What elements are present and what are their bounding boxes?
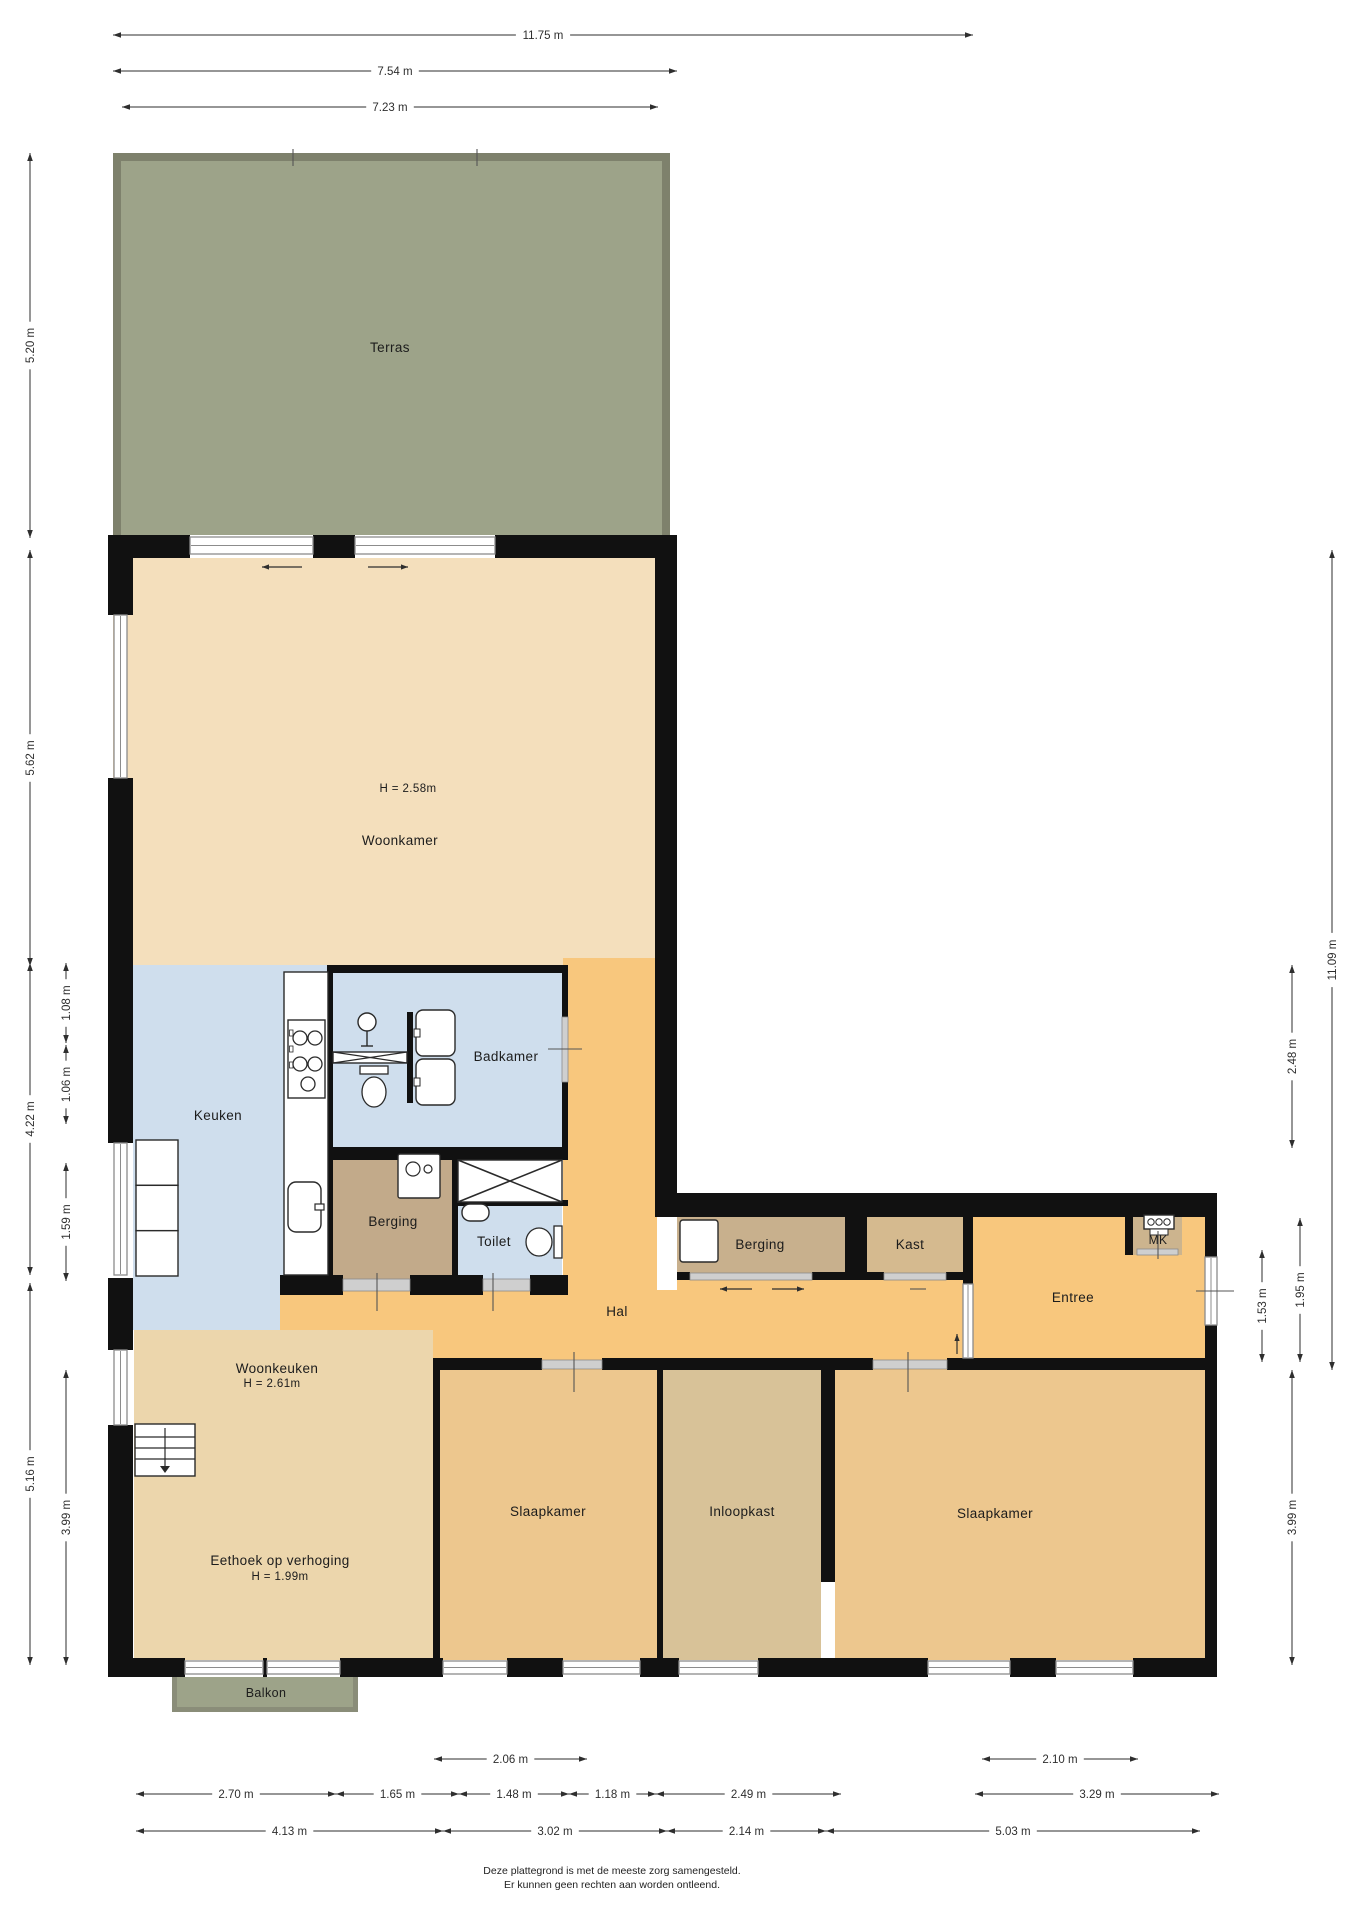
balkon-label: Balkon <box>246 1686 287 1700</box>
balkon-border <box>353 1677 358 1712</box>
wall-segment <box>1205 1193 1217 1257</box>
plan-shape <box>1289 1657 1295 1665</box>
plan-shape: 7.54 m <box>377 66 412 78</box>
wc_side-icon <box>526 1226 562 1258</box>
plan-shape: 2.06 m <box>493 1754 528 1766</box>
plan-shape <box>336 1791 344 1797</box>
plan-shape <box>414 1078 420 1086</box>
plan-shape: 1.06 m <box>61 1067 73 1102</box>
wall-segment <box>327 1147 568 1160</box>
plan-shape <box>63 1370 69 1378</box>
dimension: 3.02 m <box>443 1824 667 1839</box>
boiler-icon <box>398 1154 440 1198</box>
plan-shape: 7.23 m <box>372 102 407 114</box>
xbox-icon <box>458 1160 562 1202</box>
dimension: 3.99 m <box>1285 1370 1300 1665</box>
wall-segment <box>1133 1658 1217 1677</box>
plan-shape <box>416 1059 455 1105</box>
plan-shape <box>965 32 973 38</box>
dimension: 1.95 m <box>1293 1218 1308 1362</box>
window <box>114 1350 127 1425</box>
plan-shape <box>833 1791 841 1797</box>
plan-shape <box>569 1791 577 1797</box>
woonkeuken-height-label: H = 2.61m <box>244 1378 301 1390</box>
plan-shape <box>362 1077 386 1107</box>
shower_screen-icon <box>333 1052 407 1063</box>
wc_front-icon <box>360 1066 388 1107</box>
wall-segment <box>1125 1217 1133 1255</box>
eethoek-height-label: H = 1.99m <box>252 1571 309 1583</box>
plan-shape: 2.14 m <box>729 1826 764 1838</box>
dimension: 3.99 m <box>59 1370 74 1665</box>
wall-segment <box>108 1278 133 1350</box>
plan-shape <box>136 1140 178 1185</box>
door-sill <box>690 1273 812 1280</box>
wall-segment <box>108 1425 133 1677</box>
wall-segment <box>655 535 677 1205</box>
plan-shape: 2.70 m <box>218 1789 253 1801</box>
window <box>679 1661 758 1674</box>
terras-label: Terras <box>370 340 410 355</box>
window <box>267 1661 340 1674</box>
plan-shape: 4.13 m <box>272 1826 307 1838</box>
woonkamer-height-label: H = 2.58m <box>380 783 437 795</box>
wall-segment <box>108 535 190 558</box>
dimension: 1.59 m <box>59 1163 74 1281</box>
plan-shape <box>136 1791 144 1797</box>
wall-segment <box>327 965 568 973</box>
wall-segment <box>530 1275 568 1295</box>
footer: Deze plattegrond is met de meeste zorg s… <box>483 1865 740 1891</box>
keuken-label: Keuken <box>194 1108 242 1123</box>
wall-segment <box>640 1658 679 1677</box>
plan-shape <box>459 1791 467 1797</box>
dimension: 4.22 m <box>23 963 38 1275</box>
plan-shape <box>656 1791 664 1797</box>
dimension: 11.75 m <box>113 28 973 43</box>
plan-shape: 2.10 m <box>1042 1754 1077 1766</box>
ksink-icon <box>288 1182 324 1232</box>
plan-shape <box>526 1228 552 1256</box>
balkon-border <box>172 1707 358 1712</box>
mk-label: MK <box>1149 1233 1168 1247</box>
plan-shape <box>1192 1828 1200 1834</box>
window <box>563 1661 640 1674</box>
dimension: 5.62 m <box>23 550 38 966</box>
footer-line1: Deze plattegrond is met de meeste zorg s… <box>483 1865 740 1877</box>
wall-segment <box>562 965 568 1017</box>
plan-shape <box>1329 550 1335 558</box>
slaapkamer-2-label: Slaapkamer <box>957 1506 1033 1521</box>
wall-segment <box>433 1358 542 1370</box>
window <box>443 1661 507 1674</box>
window <box>114 1143 127 1275</box>
window <box>185 1661 263 1674</box>
plan-shape <box>63 963 69 971</box>
wall-segment <box>108 778 133 1143</box>
plan-shape <box>113 32 121 38</box>
plan-shape: 1.95 m <box>1295 1272 1307 1307</box>
plan-shape <box>561 1791 569 1797</box>
plan-shape <box>818 1828 826 1834</box>
dimension: 11.09 m <box>1325 550 1340 1370</box>
entree-label: Entree <box>1052 1290 1094 1305</box>
plan-shape <box>1289 1140 1295 1148</box>
plan-shape <box>63 1273 69 1281</box>
plan-shape <box>27 1267 33 1275</box>
plan-shape <box>358 1013 376 1031</box>
dimension: 7.54 m <box>113 64 677 79</box>
wall-segment <box>340 1658 443 1677</box>
window <box>963 1284 973 1358</box>
plan-shape: 4.22 m <box>25 1101 37 1136</box>
plan-shape: 5.16 m <box>25 1456 37 1491</box>
wall-segment <box>947 1358 1217 1370</box>
window <box>928 1661 1010 1674</box>
plan-shape: 11.75 m <box>523 30 564 42</box>
plan-shape <box>667 1828 675 1834</box>
plan-shape <box>113 68 121 74</box>
plan-shape: 2.48 m <box>1287 1039 1299 1074</box>
plan-shape <box>27 550 33 558</box>
basin-icon <box>462 1204 489 1221</box>
window <box>190 537 313 554</box>
wall-segment <box>433 1358 440 1663</box>
stairs-icon <box>135 1424 195 1476</box>
wall-segment <box>495 535 677 558</box>
plan-shape <box>1297 1354 1303 1362</box>
plan-shape <box>669 68 677 74</box>
dimension: 2.06 m <box>434 1752 587 1767</box>
plan-shape <box>680 1220 718 1262</box>
window <box>1056 1661 1133 1674</box>
dimension: 3.29 m <box>975 1787 1219 1802</box>
dimension: 1.65 m <box>336 1787 459 1802</box>
plan-shape <box>659 1828 667 1834</box>
plan-shape <box>27 153 33 161</box>
wall-segment <box>280 1275 343 1295</box>
plan-shape <box>451 1791 459 1797</box>
washer-icon <box>680 1220 718 1262</box>
plan-shape <box>27 1283 33 1291</box>
plan-shape <box>434 1756 442 1762</box>
plan-shape: 2.49 m <box>731 1789 766 1801</box>
toilet-label: Toilet <box>477 1234 511 1249</box>
plan-shape <box>27 1657 33 1665</box>
plan-shape <box>1144 1215 1174 1229</box>
plan-shape: 5.62 m <box>25 740 37 775</box>
wall-segment <box>507 1658 563 1677</box>
plan-shape <box>1130 1756 1138 1762</box>
window <box>355 537 495 554</box>
terras-border <box>113 153 670 161</box>
plan-shape <box>435 1828 443 1834</box>
plan-shape <box>648 1791 656 1797</box>
fridge-icon <box>136 1140 178 1276</box>
sink_left-icon <box>414 1010 455 1056</box>
plan-shape: 3.99 m <box>1287 1500 1299 1535</box>
plan-shape <box>122 104 130 110</box>
plan-shape <box>360 1066 388 1074</box>
plan-shape: 1.59 m <box>61 1204 73 1239</box>
plan-shape <box>1329 1362 1335 1370</box>
plan-shape <box>1211 1791 1219 1797</box>
wall-segment <box>821 1370 835 1582</box>
dimension: 1.53 m <box>1255 1250 1270 1362</box>
plan-shape: 1.65 m <box>380 1789 415 1801</box>
dimension: 2.10 m <box>982 1752 1138 1767</box>
wall-segment <box>1205 1325 1217 1677</box>
wall-segment <box>313 535 355 558</box>
plan-shape: 1.53 m <box>1257 1288 1269 1323</box>
wall-segment <box>108 1658 185 1677</box>
plan-shape <box>136 1828 144 1834</box>
dimension: 2.49 m <box>656 1787 841 1802</box>
plan-shape <box>554 1226 562 1258</box>
plan-shape <box>579 1756 587 1762</box>
wall-segment <box>845 1217 867 1274</box>
plan-shape <box>1259 1354 1265 1362</box>
plan-shape <box>982 1756 990 1762</box>
door-sill <box>884 1273 946 1280</box>
dimension: 5.16 m <box>23 1283 38 1665</box>
door-sill <box>542 1360 602 1369</box>
dimension: 5.20 m <box>23 153 38 538</box>
plan-shape: 5.20 m <box>25 328 37 363</box>
plan-shape <box>136 1231 178 1276</box>
wall-segment <box>677 1272 690 1280</box>
plan-shape <box>462 1204 489 1221</box>
wall-segment <box>410 1275 483 1295</box>
terras-border <box>662 153 670 535</box>
plan-shape <box>1297 1218 1303 1226</box>
wall-segment <box>407 1012 413 1103</box>
plan-shape <box>826 1828 834 1834</box>
plan-shape <box>1289 965 1295 973</box>
door-sill <box>873 1360 947 1369</box>
plan-shape <box>63 1035 69 1043</box>
wall-segment <box>1010 1658 1056 1677</box>
plan-shape <box>27 963 33 971</box>
plan-shape <box>1289 1370 1295 1378</box>
plan-shape <box>63 1116 69 1124</box>
berging-1-label: Berging <box>368 1214 417 1229</box>
plan-shape <box>63 1163 69 1171</box>
dimension: 1.18 m <box>569 1787 656 1802</box>
plan-shape: 1.08 m <box>61 985 73 1020</box>
dimension: 2.48 m <box>1285 965 1300 1148</box>
hal-label: Hal <box>606 1304 627 1319</box>
dimension: 5.03 m <box>826 1824 1200 1839</box>
plan-shape: 3.29 m <box>1079 1789 1114 1801</box>
footer-line2: Er kunnen geen rechten aan worden ontlee… <box>504 1879 720 1891</box>
kast-label: Kast <box>896 1237 925 1252</box>
room-hal-east <box>677 1280 973 1370</box>
balkon-border <box>172 1677 177 1712</box>
plan-shape <box>443 1828 451 1834</box>
plan-shape <box>1259 1250 1265 1258</box>
plan-shape: 5.03 m <box>995 1826 1030 1838</box>
plan-shape <box>63 1045 69 1053</box>
eethoek-label: Eethoek op verhoging <box>210 1553 349 1568</box>
plan-shape <box>416 1010 455 1056</box>
plan-shape <box>328 1791 336 1797</box>
floorplan-svg: 11.75 m7.54 m7.23 m5.20 m5.62 m4.22 m5.1… <box>0 0 1358 1920</box>
floorplan-page: 11.75 m7.54 m7.23 m5.20 m5.62 m4.22 m5.1… <box>0 0 1358 1920</box>
slaapkamer-1-label: Slaapkamer <box>510 1504 586 1519</box>
plan-shape: 11.09 m <box>1327 940 1339 981</box>
wall-segment <box>562 1082 568 1160</box>
plan-shape <box>414 1029 420 1037</box>
wall-segment <box>758 1658 928 1677</box>
dimension: 2.14 m <box>667 1824 826 1839</box>
plan-shape: 3.02 m <box>537 1826 572 1838</box>
dimension: 1.06 m <box>59 1045 74 1124</box>
dimension: 1.48 m <box>459 1787 569 1802</box>
plan-shape <box>27 530 33 538</box>
plan-shape <box>650 104 658 110</box>
dimension: 2.70 m <box>136 1787 336 1802</box>
room-woonkamer <box>113 558 657 965</box>
door-sill <box>483 1279 530 1291</box>
dimension: 1.08 m <box>59 963 74 1043</box>
plan-shape: 3.99 m <box>61 1500 73 1535</box>
wall-segment <box>946 1272 973 1280</box>
sink_left-icon <box>414 1059 455 1105</box>
badkamer-label: Badkamer <box>474 1049 539 1064</box>
woonkeuken-label: Woonkeuken <box>236 1361 319 1376</box>
plan-shape <box>63 1657 69 1665</box>
dimension: 7.23 m <box>122 100 658 115</box>
plan-shape <box>136 1185 178 1230</box>
window <box>114 615 127 778</box>
terras-border <box>113 153 121 535</box>
hob-icon <box>288 1020 325 1098</box>
plan-shape <box>315 1204 324 1210</box>
dimension: 4.13 m <box>136 1824 443 1839</box>
plan-shape: 1.48 m <box>496 1789 531 1801</box>
wall-segment <box>602 1358 873 1370</box>
wall-segment <box>812 1272 884 1280</box>
berging-2-label: Berging <box>735 1237 784 1252</box>
wall-segment <box>655 1193 1217 1217</box>
inloopkast-label: Inloopkast <box>709 1504 775 1519</box>
plan-shape <box>398 1154 440 1198</box>
plan-shape: 1.18 m <box>595 1789 630 1801</box>
wall-segment <box>657 1370 663 1660</box>
plan-shape <box>975 1791 983 1797</box>
wall-segment <box>452 1160 458 1275</box>
woonkamer-label: Woonkamer <box>362 833 438 848</box>
